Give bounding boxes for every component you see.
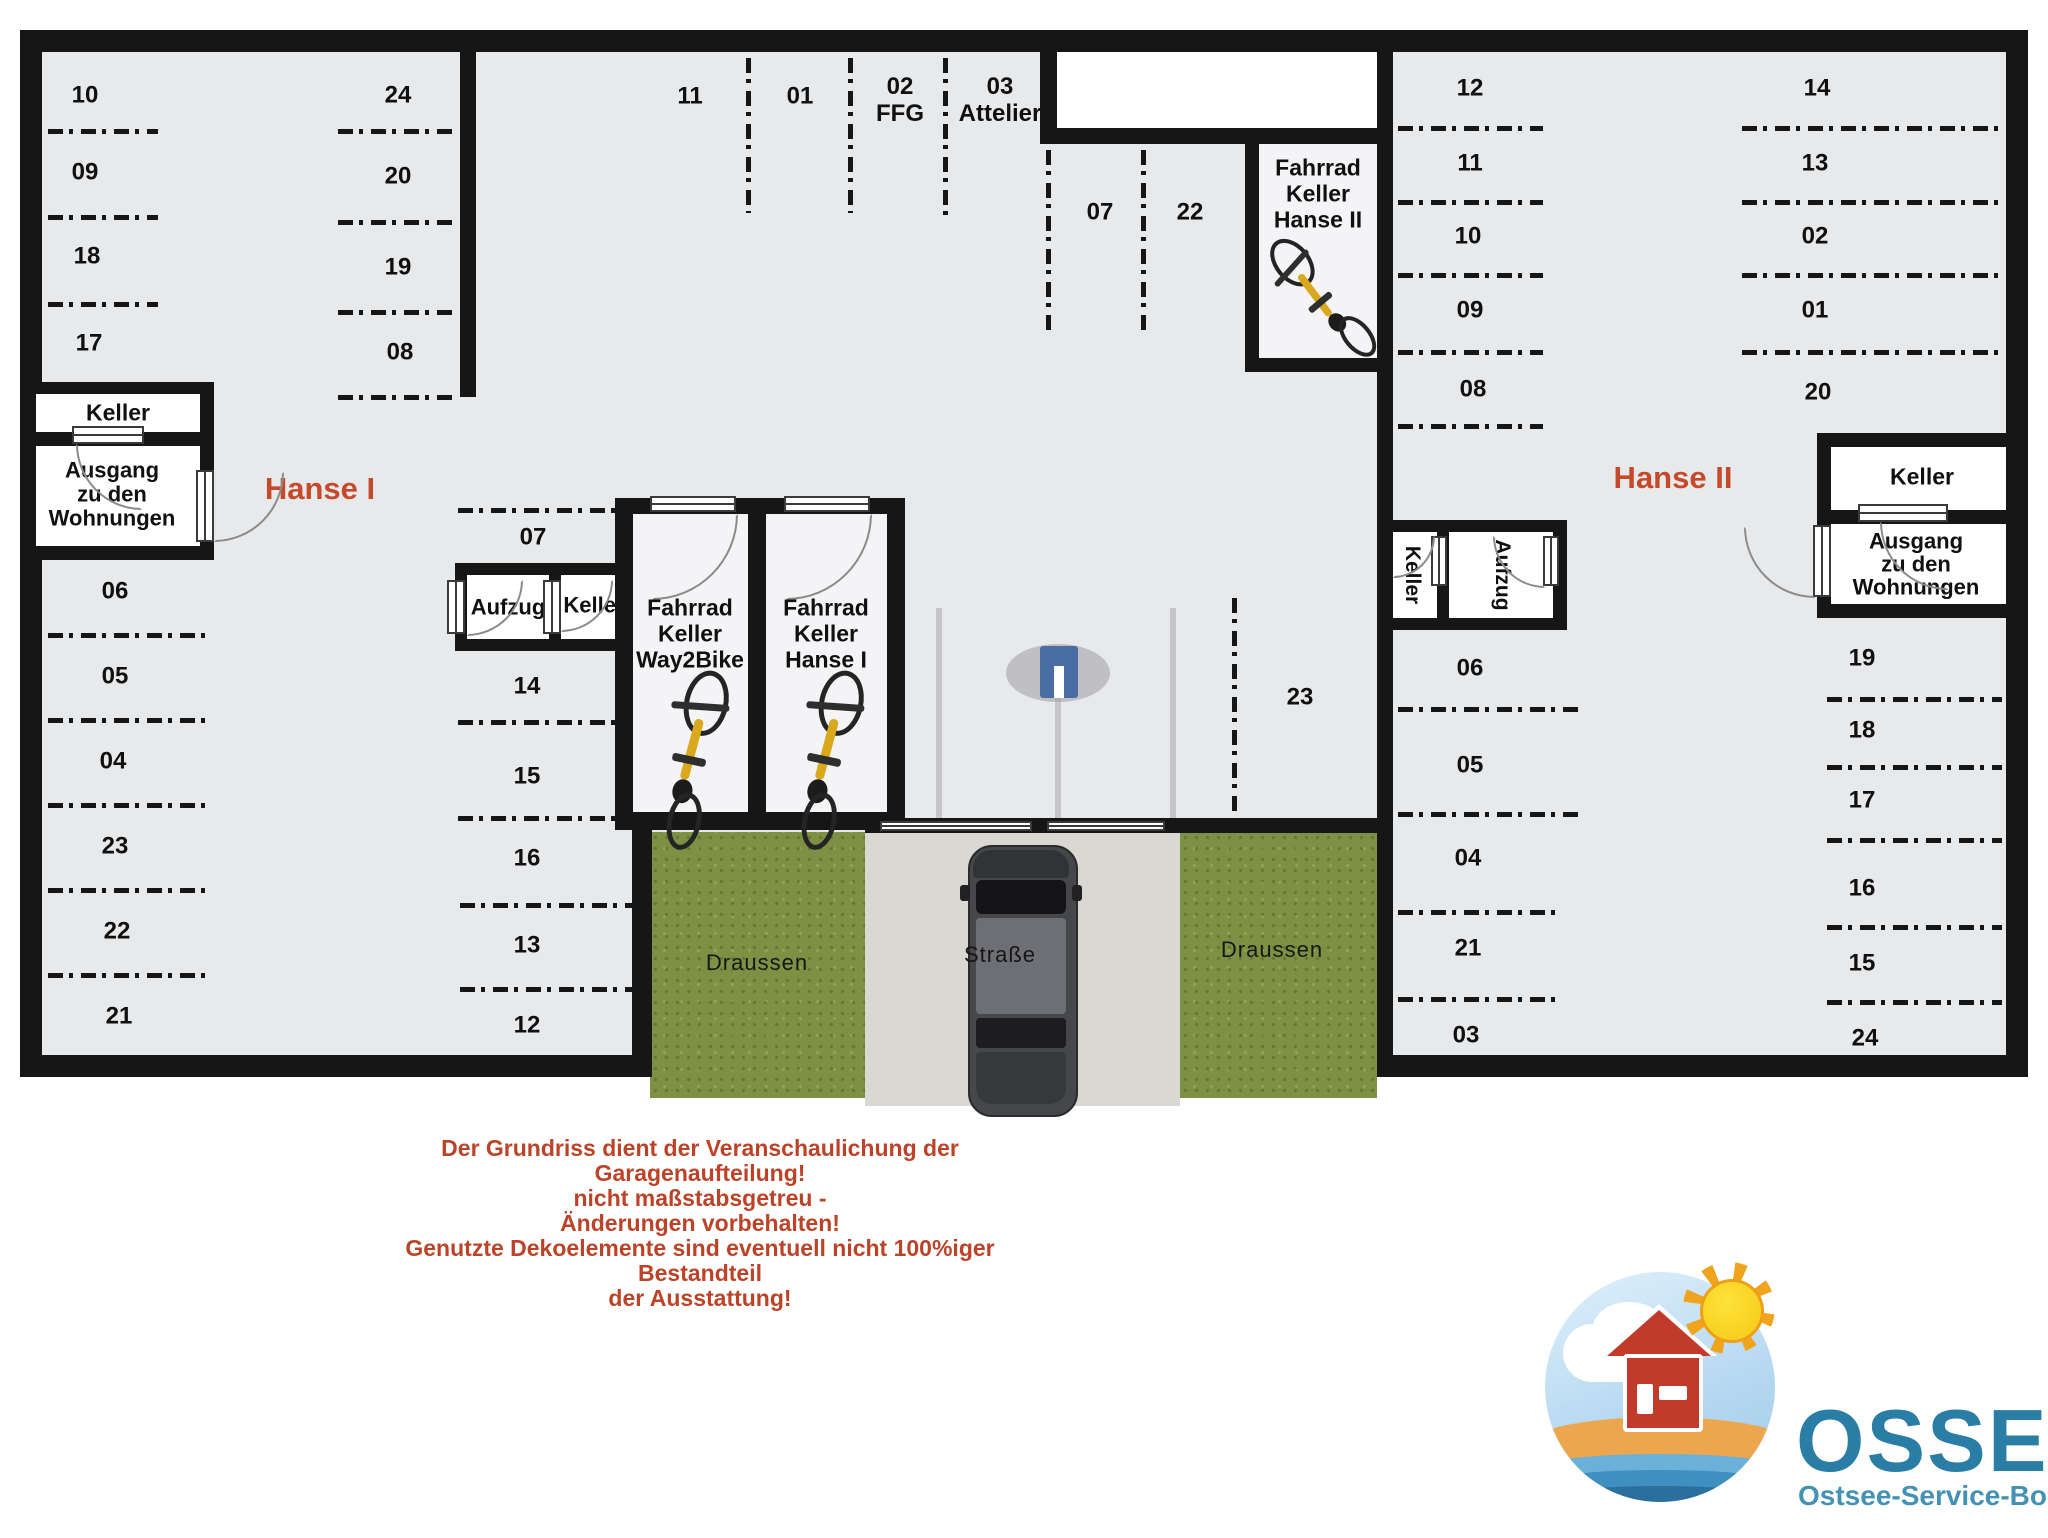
door-threshold [1813,525,1831,597]
parking-divider [1742,200,2002,205]
parking-spot: 15 [1849,950,1876,977]
parking-spot: 17 [1849,787,1876,814]
parking-spot: 19 [385,254,412,281]
wall-niche-bottom [1040,128,1393,144]
parking-spot: 08 [387,339,414,366]
parking-divider [48,302,158,307]
parking-divider [48,215,158,220]
parking-spot: 06 [1457,655,1484,682]
parking-divider [1742,273,2002,278]
parking-spot: 06 [102,578,129,605]
parking-spot: 20 [1805,379,1832,406]
wall-bottom-hanse2 [1377,1055,2028,1077]
wall-inner-hanse1 [460,52,476,397]
parking-divider [458,720,636,725]
parking-spot: 18 [1849,717,1876,744]
lane-post-right [1170,608,1176,820]
parking-spot: 04 [100,748,127,775]
spot-sublabel: Attelier [959,100,1042,127]
spot-number: 11 [677,83,702,110]
parking-divider [1398,997,1558,1002]
parking-spot: 19 [1849,645,1876,672]
ausgang-label-line: Wohnungen [49,505,176,532]
parking-spot: 14 [1804,75,1831,102]
parking-spot: 23 [1287,684,1314,711]
parking-divider [1398,812,1578,817]
parking-divider [1232,598,1237,816]
niche-area [1057,52,1377,128]
keller-label: Keller [1890,464,1954,491]
parking-divider [458,508,636,513]
parking-spot: 13 [514,932,541,959]
parking-spot: 12 [514,1012,541,1039]
parking-divider [1398,350,1543,355]
bike-room-label-line: Fahrrad [783,595,869,622]
disclaimer-text: Der Grundriss dient der Veranschaulichun… [345,1136,1055,1311]
car-icon [968,845,1078,1117]
parking-spot: 07 [520,524,547,551]
parking-divider [48,633,213,638]
bike-room-label-line: Hanse II [1274,207,1362,234]
parking-spot: 09 [1457,297,1484,324]
draussen-left-label: Draussen [706,950,808,976]
parking-divider [338,220,458,225]
parking-divider [1046,150,1051,332]
bike-room-label-line: Fahrrad [1275,155,1361,182]
spot-number: 01 [787,83,814,110]
garage-door-panel [880,821,1032,831]
door-threshold [784,496,870,512]
parking-divider [1398,273,1543,278]
parking-spot: 05 [102,663,129,690]
parking-spot: 11 [1457,150,1482,177]
parking-divider [1827,697,2002,702]
parking-spot: 03 [1453,1022,1480,1049]
parking-spot: 01 [1802,297,1829,324]
parking-divider [1742,126,2002,131]
parking-divider [1398,200,1543,205]
parking-divider [1398,910,1558,915]
bike-room-label-line: Fahrrad [647,595,733,622]
parking-spot: 05 [1457,752,1484,779]
parking-spot: 14 [514,673,541,700]
parking-divider [338,395,458,400]
bike-room-label-line: Keller [658,621,722,648]
parking-divider [48,718,213,723]
parking-spot: 04 [1455,845,1482,872]
spot-sublabel: FFG [876,100,924,127]
door-threshold [1858,504,1948,522]
wall-top [20,30,2028,52]
parking-spot: 20 [385,163,412,190]
gate-symbol-icon [1040,646,1078,698]
parking-spot: 17 [76,330,103,357]
parking-spot: 24 [1852,1025,1879,1052]
grass-right [1180,832,1377,1098]
parking-divider [1742,350,2002,355]
parking-spot: 23 [102,833,129,860]
parking-divider [460,903,632,908]
parking-spot: 18 [74,243,101,270]
parking-divider [1141,150,1146,332]
parking-divider [1827,838,2002,843]
hanse2-label: Hanse II [1614,460,1733,496]
wall-hanse1-right-lower [632,812,652,1077]
parking-spot: 22 [104,918,131,945]
parking-divider [338,129,458,134]
draussen-right-label: Draussen [1221,937,1323,963]
parking-divider [1827,765,2002,770]
parking-spot: 07 [1087,199,1114,226]
parking-divider [460,987,632,992]
parking-divider [48,888,213,893]
parking-divider [48,129,158,134]
parking-divider [458,816,636,821]
company-logo: OSSEBO Ostsee-Service-Boltenhagen GmbH [1528,1262,2048,1538]
door-threshold [650,496,736,512]
parking-spot: 10 [1455,223,1482,250]
logo-subtitle-text: Ostsee-Service-Boltenhagen GmbH [1798,1480,2048,1512]
wall-bike-hanse2-bottom [1245,358,1393,372]
disclaimer-line: der Ausstattung! [345,1286,1055,1311]
parking-spot: 24 [385,82,412,109]
parking-spot: 16 [1849,875,1876,902]
parking-divider [338,310,458,315]
parking-divider [1398,126,1543,131]
parking-divider [943,58,948,216]
parking-spot: 02 [1802,223,1829,250]
parking-divider [1398,707,1578,712]
door-threshold [1543,536,1559,586]
parking-divider [746,58,751,213]
parking-divider [848,58,853,213]
door-threshold [196,470,214,542]
gate-sign-pole [1055,698,1061,820]
parking-spot: 16 [514,845,541,872]
parking-spot: 13 [1802,150,1829,177]
parking-spot: 21 [1455,935,1482,962]
parking-spot: 10 [72,82,99,109]
spot-number: 02 [876,73,924,100]
parking-divider [1827,1000,2002,1005]
door-threshold [543,580,561,634]
bike-room-label-line: Keller [794,621,858,648]
parking-spot: 02 FFG [876,73,924,127]
parking-spot: 22 [1177,199,1204,226]
disclaimer-line: Der Grundriss dient der Veranschaulichun… [345,1136,1055,1186]
strasse-label: Straße [964,942,1036,968]
parking-divider [48,803,213,808]
parking-spot: 12 [1457,75,1484,102]
garage-door-panel [1047,821,1165,831]
lane-post-left [936,608,942,820]
parking-divider [1827,925,2002,930]
disclaimer-line: Änderungen vorbehalten! [345,1211,1055,1236]
parking-spot: 03 Attelier [959,73,1042,127]
door-threshold [447,580,465,634]
parking-spot: 15 [514,763,541,790]
logo-brand-text: OSSEBO [1796,1390,2048,1492]
wall-bottom-hanse1 [20,1055,652,1077]
parking-spot: 21 [106,1003,133,1030]
parking-spot: 08 [1460,376,1487,403]
parking-spot: 11 [677,83,702,110]
garage-floor-plan: Draussen Draussen Straße 10 09 18 17 24 … [0,0,2048,1538]
disclaimer-line: Genutzte Dekoelemente sind eventuell nic… [345,1236,1055,1286]
parking-spot: 01 [787,83,814,110]
parking-divider [1398,424,1543,429]
keller-label: Keller [86,400,150,427]
disclaimer-line: nicht maßstabsgetreu - [345,1186,1055,1211]
door-threshold [72,426,144,444]
spot-number: 03 [959,73,1042,100]
bike-room-label-line: Keller [1286,181,1350,208]
parking-spot: 09 [72,159,99,186]
sun-icon [1683,1262,1775,1354]
parking-divider [48,973,213,978]
